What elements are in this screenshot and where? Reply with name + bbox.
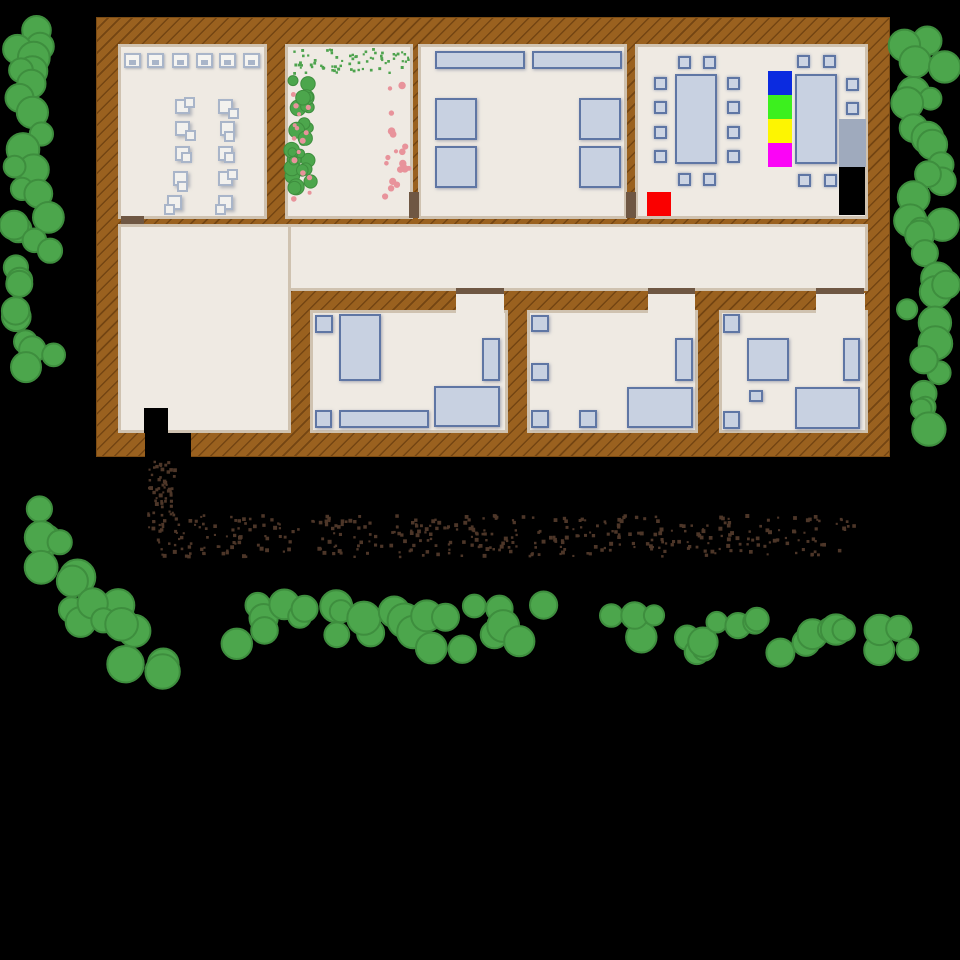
chair[interactable] — [703, 173, 716, 186]
seat-tile-magenta[interactable] — [768, 143, 792, 167]
door-bedroom-middle[interactable] — [648, 288, 695, 294]
computer-desk[interactable] — [196, 53, 213, 68]
dining-table[interactable] — [795, 74, 837, 164]
shelf[interactable] — [843, 338, 860, 381]
game-viewport: { "scene": { "title": "top-down building… — [0, 0, 960, 960]
seat-tile-green[interactable] — [768, 95, 792, 119]
office-item[interactable] — [218, 195, 233, 210]
chair[interactable] — [727, 101, 740, 114]
paper-sheet — [224, 131, 235, 142]
entrance-doorway[interactable] — [145, 433, 191, 459]
chair[interactable] — [654, 101, 667, 114]
counter[interactable] — [532, 51, 622, 69]
desk-chair-mark — [152, 60, 159, 65]
tree-strip-left — [0, 122, 65, 382]
door-garden-canteen[interactable] — [409, 192, 419, 218]
hedge-bottom-right — [600, 602, 918, 666]
nightstand[interactable] — [531, 363, 549, 381]
canteen-table[interactable] — [435, 146, 477, 188]
office-item[interactable] — [218, 99, 233, 114]
canteen-table[interactable] — [579, 146, 621, 188]
black-closet[interactable] — [839, 167, 865, 215]
gray-bench[interactable] — [839, 119, 866, 167]
bed[interactable] — [795, 387, 860, 429]
nightstand[interactable] — [531, 315, 549, 332]
chair[interactable] — [797, 55, 810, 68]
bed[interactable] — [339, 314, 381, 381]
door-bedroom-right[interactable] — [816, 288, 864, 294]
nightstand[interactable] — [723, 314, 740, 333]
office-item[interactable] — [220, 121, 235, 136]
doorway-bedroom-right — [816, 293, 865, 313]
chair[interactable] — [823, 55, 836, 68]
tree-cluster-bottom-left — [25, 496, 180, 688]
hedge-bottom-center — [222, 590, 558, 664]
door-bedroom-left[interactable] — [456, 288, 504, 294]
stool[interactable] — [315, 410, 332, 428]
paper-sheet — [185, 130, 196, 141]
office-item[interactable] — [218, 146, 233, 161]
chair[interactable] — [727, 150, 740, 163]
doorway-bedroom-left — [456, 293, 504, 313]
office-item[interactable] — [173, 171, 188, 186]
map-scene — [0, 0, 960, 960]
paper-sheet — [181, 152, 192, 163]
paper-sheet — [215, 204, 226, 215]
door-office[interactable] — [121, 216, 144, 224]
chair[interactable] — [654, 77, 667, 90]
small-box[interactable] — [749, 390, 763, 402]
nightstand[interactable] — [315, 315, 333, 333]
dining-table[interactable] — [675, 74, 717, 164]
counter[interactable] — [435, 51, 525, 69]
door-canteen-dining[interactable] — [626, 192, 636, 218]
paper-sheet — [164, 204, 175, 215]
chair[interactable] — [824, 174, 837, 187]
seat-tile-yellow[interactable] — [768, 119, 792, 143]
chair[interactable] — [846, 78, 859, 91]
paper-sheet — [184, 97, 195, 108]
dirt-path-vertical — [147, 461, 178, 528]
desk-chair-mark — [201, 60, 208, 65]
dresser[interactable] — [339, 410, 429, 428]
red-tile[interactable] — [647, 192, 671, 216]
bed[interactable] — [627, 387, 693, 428]
paper-sheet — [177, 181, 188, 192]
floor-room-garden — [285, 44, 413, 219]
desk-chair-mark — [129, 60, 136, 65]
paper-sheet — [224, 152, 235, 163]
chair[interactable] — [703, 56, 716, 69]
office-item[interactable] — [175, 146, 190, 161]
canteen-table[interactable] — [435, 98, 477, 140]
shelf[interactable] — [675, 338, 693, 381]
seat-tile-blue[interactable] — [768, 71, 792, 95]
tree-cluster-left-top — [3, 16, 54, 128]
chair[interactable] — [727, 77, 740, 90]
computer-desk[interactable] — [147, 53, 164, 68]
stool[interactable] — [531, 410, 549, 428]
chair[interactable] — [654, 150, 667, 163]
desk-table[interactable] — [434, 386, 500, 427]
chair[interactable] — [678, 173, 691, 186]
chair[interactable] — [798, 174, 811, 187]
office-item[interactable] — [167, 195, 182, 210]
paper-sheet — [228, 108, 239, 119]
computer-desk[interactable] — [219, 53, 236, 68]
office-item[interactable] — [175, 121, 190, 136]
chair[interactable] — [678, 56, 691, 69]
desk-chair-mark — [177, 60, 184, 65]
chair[interactable] — [846, 102, 859, 115]
entrance-mat[interactable] — [144, 408, 168, 433]
chair[interactable] — [654, 126, 667, 139]
canteen-table[interactable] — [579, 98, 621, 140]
desk-chair-mark — [248, 60, 255, 65]
computer-desk[interactable] — [124, 53, 141, 68]
tree-strip-right — [889, 27, 960, 446]
dirt-path-horizontal — [148, 514, 856, 558]
office-item[interactable] — [218, 171, 233, 186]
doorway-bedroom-middle — [648, 293, 695, 313]
stool[interactable] — [579, 410, 597, 428]
paper-sheet — [227, 169, 238, 180]
office-item[interactable] — [175, 99, 190, 114]
computer-desk[interactable] — [243, 53, 260, 68]
computer-desk[interactable] — [172, 53, 189, 68]
stool[interactable] — [723, 411, 740, 429]
chair[interactable] — [727, 126, 740, 139]
table-square[interactable] — [747, 338, 789, 381]
desk-chair-mark — [224, 60, 231, 65]
floor-lobby — [118, 224, 291, 433]
shelf[interactable] — [482, 338, 500, 381]
